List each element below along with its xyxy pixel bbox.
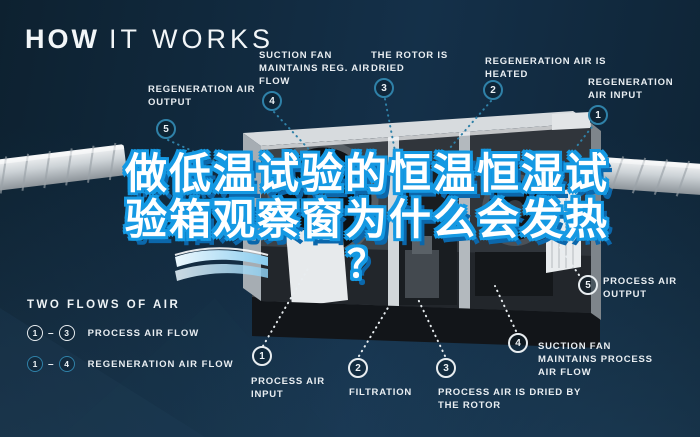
label-regeneration-air-output: REGENERATION AIR OUTPUT: [148, 84, 266, 110]
infographic-canvas: HOWIT WORKS 做低温试验的恒温恒湿试 验箱观察窗为什么会发热 ？ RE…: [0, 0, 700, 437]
label-process-air-input: PROCESS AIR INPUT: [251, 376, 356, 402]
badge-regen-2: 2: [483, 80, 503, 100]
label-rotor-dried: THE ROTOR IS DRIED: [371, 50, 463, 76]
badge-process-4: 4: [508, 333, 528, 353]
legend-label-regeneration: REGENERATION AIR FLOW: [88, 359, 234, 370]
legend-separator: –: [48, 328, 54, 339]
label-suction-fan-process: SUCTION FAN MAINTAINS PROCESS AIR FLOW: [538, 341, 668, 379]
badge-regen-1: 1: [588, 105, 608, 125]
headline-line1: 做低温试验的恒温恒湿试: [34, 153, 700, 195]
badge-regen-3: 3: [374, 78, 394, 98]
badge-process-5: 5: [578, 275, 598, 295]
page-title-strong: HOW: [25, 24, 100, 54]
label-regeneration-air-input: REGENERATION AIR INPUT: [588, 77, 693, 103]
badge-regen-5: 5: [156, 119, 176, 139]
legend-circle-start: 1: [27, 325, 43, 341]
badge-regen-4: 4: [262, 91, 282, 111]
legend-row-regeneration: 1 – 4 REGENERATION AIR FLOW: [27, 356, 234, 372]
legend-circle-start: 1: [27, 356, 43, 372]
page-title-light: IT WORKS: [109, 24, 274, 54]
badge-process-1: 1: [252, 346, 272, 366]
badge-process-2: 2: [348, 358, 368, 378]
headline-line3: ？: [34, 245, 700, 283]
label-suction-fan-reg: SUCTION FAN MAINTAINS REG. AIR FLOW: [259, 50, 377, 88]
page-title: HOWIT WORKS: [25, 24, 274, 55]
legend-row-process: 1 – 3 PROCESS AIR FLOW: [27, 325, 199, 341]
legend-title: TWO FLOWS OF AIR: [27, 299, 180, 311]
legend-separator: –: [48, 359, 54, 370]
legend-circle-end: 4: [59, 356, 75, 372]
label-process-air-dried: PROCESS AIR IS DRIED BY THE ROTOR: [438, 387, 598, 413]
legend-circle-end: 3: [59, 325, 75, 341]
headline-line2: 验箱观察窗为什么会发热: [34, 199, 700, 241]
label-process-air-output: PROCESS AIR OUTPUT: [603, 276, 695, 302]
label-filtration: FILTRATION: [349, 387, 439, 400]
badge-process-3: 3: [436, 358, 456, 378]
legend-label-process: PROCESS AIR FLOW: [88, 328, 200, 339]
